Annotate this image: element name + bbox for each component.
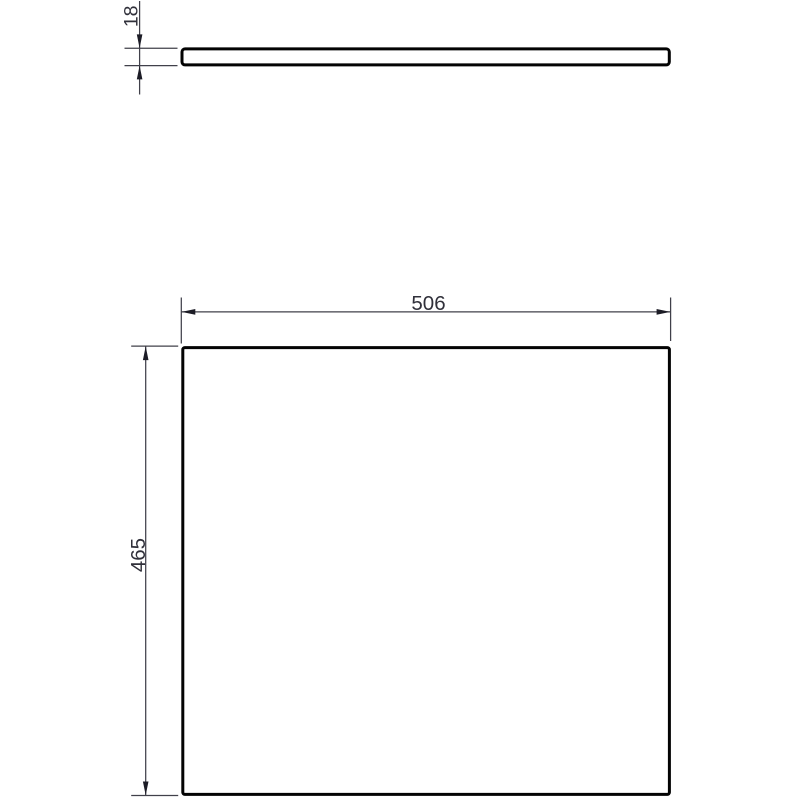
svg-text:465: 465 xyxy=(127,538,150,572)
